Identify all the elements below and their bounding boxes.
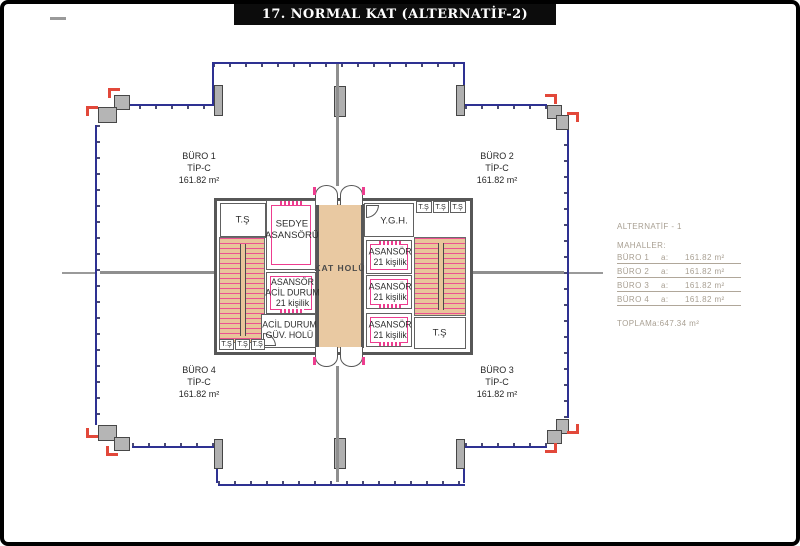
office-type: TİP-C (485, 377, 509, 389)
stairs-west (219, 237, 265, 343)
legend-alternatif: ALTERNATİF - 1 (617, 222, 749, 231)
facade-south (218, 481, 465, 486)
column (456, 439, 465, 469)
door-jamb (313, 187, 316, 195)
red-fin-icon (86, 428, 98, 438)
elevator-door (280, 201, 304, 205)
legend-row: BÜRO 1 a: 161.82 m² (617, 250, 741, 264)
office-type: TİP-C (187, 163, 211, 175)
label-sedye: SEDYE ASANSÖRÜ (267, 215, 317, 245)
shaft-ts: T.Ş (219, 339, 234, 350)
office-type: TİP-C (187, 377, 211, 389)
partition-west (100, 271, 214, 274)
shaft-ts: T.Ş (251, 339, 265, 350)
partition-east (470, 271, 564, 274)
legend-total-row: TOPLAM a: 647.34 m² (617, 316, 741, 329)
door-jamb (313, 357, 316, 365)
label-buro-2: BÜRO 2 TİP-C 161.82 m² (447, 147, 547, 191)
label-buro-3: BÜRO 3 TİP-C 161.82 m² (447, 361, 547, 405)
shaft-ts: T.Ş (450, 201, 466, 213)
legend-row: BÜRO 2 a: 161.82 m² (617, 264, 741, 278)
label-asansor: ASANSÖR21 kişilik (367, 316, 413, 346)
office-name: BÜRO 2 (480, 151, 514, 163)
red-fin-icon (545, 94, 557, 104)
room-ygh: Y.G.H. (364, 203, 414, 237)
room-ts-southeast: T.Ş (414, 317, 466, 349)
room-sedye-asansoru: SEDYE ASANSÖRÜ (266, 200, 316, 270)
office-name: BÜRO 4 (182, 365, 216, 377)
shaft-ts: T.Ş (433, 201, 449, 213)
door-arc-icon (315, 347, 338, 367)
office-name: BÜRO 1 (182, 151, 216, 163)
room-asansor-acil-durum: ASANSÖR ACİL DURUM 21 kişilik (266, 272, 316, 314)
door-arc-icon (315, 185, 338, 205)
shaft-ts: T.Ş (235, 339, 250, 350)
column (214, 85, 223, 116)
legend-mahaller: MAHALLER: (617, 241, 749, 250)
door-jamb (362, 357, 365, 365)
legend: ALTERNATİF - 1 MAHALLER: BÜRO 1 a: 161.8… (617, 222, 749, 329)
column (456, 85, 465, 116)
office-area: 161.82 m² (179, 389, 220, 401)
facade-southeast (465, 443, 547, 448)
red-fin-icon (545, 443, 557, 453)
facade-west (95, 125, 100, 425)
office-name: BÜRO 3 (480, 365, 514, 377)
label-buro-4: BÜRO 4 TİP-C 161.82 m² (149, 361, 249, 405)
page-title: 17. NORMAL KAT (ALTERNATİF-2) (262, 7, 528, 22)
red-fin-icon (106, 446, 118, 456)
red-fin-icon (86, 106, 98, 116)
facade-southwest (132, 443, 214, 448)
label-ygh: Y.G.H. (373, 204, 415, 238)
elevator-1: ASANSÖR21 kişilik (366, 240, 412, 274)
elevator-2: ASANSÖR21 kişilik (366, 275, 412, 309)
office-area: 161.82 m² (179, 175, 220, 187)
column (214, 439, 223, 469)
stair-rail (240, 244, 246, 336)
legend-row: BÜRO 4 a: 161.82 m² (617, 292, 741, 306)
stairs-east (414, 237, 466, 316)
facade-northwest (123, 104, 213, 109)
title-banner: 17. NORMAL KAT (ALTERNATİF-2) (234, 4, 556, 25)
red-fin-icon (567, 424, 579, 434)
label-asansor: ASANSÖR21 kişilik (367, 278, 413, 308)
label-buro-1: BÜRO 1 TİP-C 161.82 m² (149, 147, 249, 191)
office-type: TİP-C (485, 163, 509, 175)
room-acil-durum-guv-holu: ACİL DURUM GÜV. HOLÜ (261, 314, 316, 348)
axis-line-east (569, 272, 603, 274)
room-ts: T.Ş (220, 203, 266, 237)
stair-rail (438, 243, 444, 311)
corner-wall-nw (98, 107, 117, 123)
label-asansor-acil: ASANSÖR ACİL DURUM 21 kişilik (267, 276, 317, 310)
elevator-door (280, 309, 304, 313)
elevator-3: ASANSÖR21 kişilik (366, 313, 412, 347)
facade-north (213, 62, 465, 67)
office-area: 161.82 m² (477, 389, 518, 401)
red-fin-icon (108, 88, 120, 98)
corner-wall-se (547, 430, 562, 444)
red-fin-icon (567, 112, 579, 122)
axis-line-west (62, 272, 95, 274)
facade-northeast (465, 104, 547, 109)
door-arc-icon (340, 185, 363, 205)
shaft-ts: T.Ş (416, 201, 432, 213)
label-asansor: ASANSÖR21 kişilik (367, 243, 413, 273)
door-arc-icon (340, 347, 363, 367)
partition-south (336, 366, 339, 482)
door-jamb (362, 187, 365, 195)
legend-row: BÜRO 3 a: 161.82 m² (617, 278, 741, 292)
office-area: 161.82 m² (477, 175, 518, 187)
partition-north (336, 64, 339, 186)
label-kat-holu: KAT HOLÜ (310, 258, 370, 278)
label-acil-hol: ACİL DURUM GÜV. HOLÜ (264, 317, 315, 345)
